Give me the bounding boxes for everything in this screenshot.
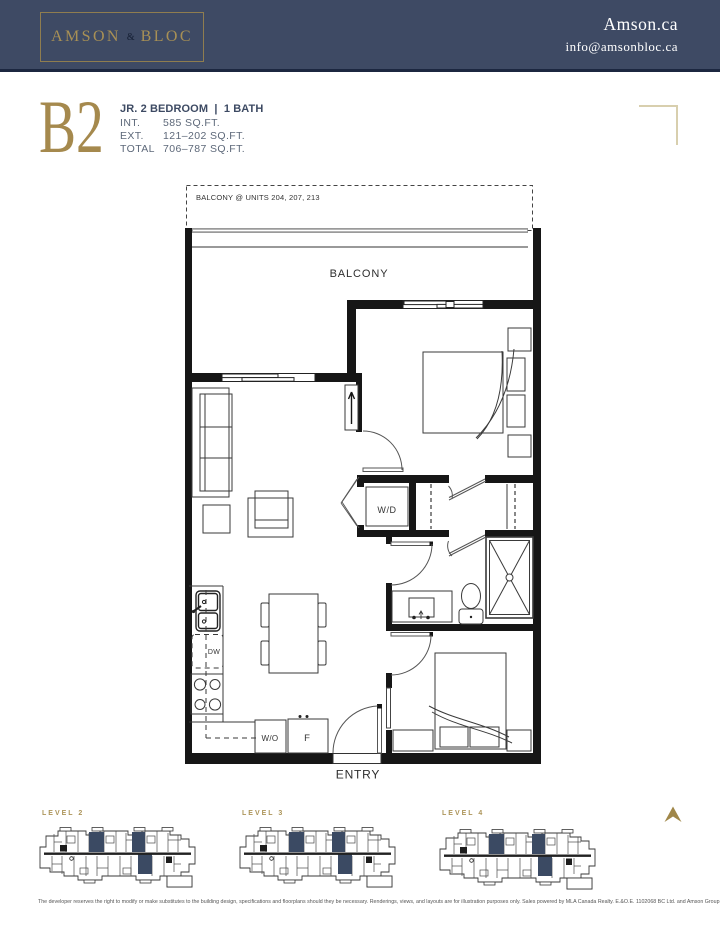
svg-text:DW: DW — [208, 649, 220, 656]
svg-text:ENTRY: ENTRY — [336, 768, 380, 782]
svg-text:BALCONY: BALCONY — [330, 268, 389, 280]
svg-text:W/D: W/D — [377, 505, 396, 515]
svg-text:F: F — [304, 733, 310, 744]
svg-text:W/O: W/O — [262, 734, 279, 743]
svg-text:BALCONY @ UNITS 204, 207, 213: BALCONY @ UNITS 204, 207, 213 — [196, 193, 320, 202]
